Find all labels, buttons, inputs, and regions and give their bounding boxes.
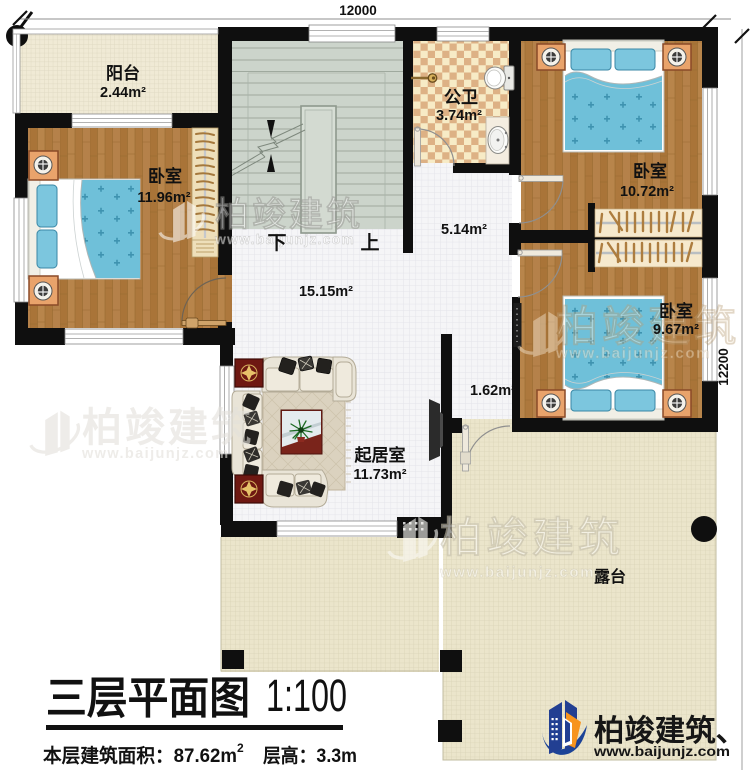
svg-text:柏竣建筑: 柏竣建筑 xyxy=(215,195,363,234)
svg-text:露台: 露台 xyxy=(594,567,626,586)
svg-text:三层平面图: 三层平面图 xyxy=(46,674,250,723)
svg-text:上: 上 xyxy=(360,232,379,254)
svg-text:www.baijunjz.com: www.baijunjz.com xyxy=(593,743,730,759)
svg-text:3.74m²: 3.74m² xyxy=(436,108,482,124)
svg-text:1:100: 1:100 xyxy=(266,670,347,721)
svg-text:www.baijunjz.com: www.baijunjz.com xyxy=(555,345,711,362)
svg-text:11.96m²: 11.96m² xyxy=(137,190,190,206)
svg-text:柏竣建筑: 柏竣建筑 xyxy=(440,514,624,561)
svg-text:www.baijunjz.com: www.baijunjz.com xyxy=(81,446,230,462)
svg-text:12200: 12200 xyxy=(716,348,731,386)
svg-text:9.67m²: 9.67m² xyxy=(653,322,699,338)
svg-text:柏竣建筑: 柏竣建筑 xyxy=(556,303,740,350)
svg-text:5.14m²: 5.14m² xyxy=(441,222,487,238)
svg-text:柏竣建筑: 柏竣建筑 xyxy=(82,406,254,450)
svg-text:卧室: 卧室 xyxy=(659,301,693,321)
svg-text:层高：3.3m: 层高：3.3m xyxy=(263,744,357,767)
svg-text:2.44m²: 2.44m² xyxy=(100,85,146,101)
svg-text:10.72m²: 10.72m² xyxy=(620,184,674,200)
svg-text:卧室: 卧室 xyxy=(633,161,667,181)
svg-text:11.73m²: 11.73m² xyxy=(353,467,406,483)
svg-text:12000: 12000 xyxy=(339,3,377,18)
svg-text:本层建筑面积：87.62m: 本层建筑面积：87.62m xyxy=(43,744,237,767)
svg-text:阳台: 阳台 xyxy=(106,63,140,83)
svg-text:www.baijunjz.com: www.baijunjz.com xyxy=(439,564,595,581)
svg-text:2: 2 xyxy=(237,741,244,755)
svg-text:15.15m²: 15.15m² xyxy=(299,284,353,300)
svg-text:1.62m²: 1.62m² xyxy=(470,383,516,399)
svg-text:下: 下 xyxy=(267,233,286,254)
svg-text:公卫: 公卫 xyxy=(444,88,478,107)
svg-text:起居室: 起居室 xyxy=(354,445,406,465)
svg-text:卧室: 卧室 xyxy=(148,166,182,186)
